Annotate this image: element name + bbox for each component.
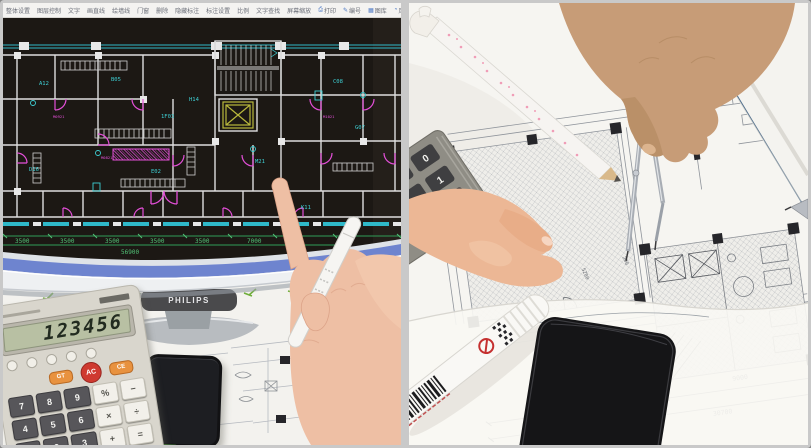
svg-text:3500: 3500	[15, 238, 30, 245]
svg-text:M1021: M1021	[323, 114, 335, 119]
svg-text:A12: A12	[39, 81, 49, 87]
menu-item[interactable]: 删除	[156, 6, 168, 15]
ce-key: CE	[108, 359, 134, 376]
digit-key: 2	[43, 435, 71, 445]
menu-item[interactable]: 屏幕缩放	[287, 6, 311, 15]
left-photo-cad-monitor: 整体设置 图层控制 文字 画直线 绘墙线 门窗 删除 隐藏标注 标注设置 比例 …	[3, 3, 401, 445]
svg-text:B05: B05	[111, 77, 121, 83]
menu-item-label: 打印	[324, 6, 336, 15]
svg-text:3500: 3500	[105, 238, 120, 245]
menu-item-label: 编号	[349, 6, 361, 15]
digit-key: 9	[63, 386, 91, 410]
digit-key: 4	[11, 417, 39, 441]
gt-key: GT	[48, 368, 74, 385]
svg-text:K11: K11	[301, 205, 311, 211]
svg-text:M0921: M0921	[53, 114, 65, 119]
round-key	[45, 353, 58, 366]
svg-text:3500: 3500	[60, 238, 75, 245]
svg-text:G07: G07	[355, 125, 365, 131]
library-icon: ▦	[368, 7, 374, 14]
monitor-brand-logo: PHILIPS	[168, 296, 210, 305]
menu-item-print[interactable]: ⎙ 打印	[318, 6, 336, 15]
total-dimension-label: 56900	[121, 249, 139, 256]
round-key	[65, 350, 78, 363]
hatched-room	[113, 149, 169, 160]
svg-text:C08: C08	[333, 79, 343, 85]
ac-key: AC	[79, 360, 103, 384]
menu-item[interactable]: 图层控制	[37, 6, 61, 15]
menu-item[interactable]: 画直线	[87, 6, 105, 15]
svg-text:3500: 3500	[195, 238, 210, 245]
edit-icon: ✎	[343, 7, 348, 14]
svg-text:3500: 3500	[150, 238, 165, 245]
cad-menu-bar: 整体设置 图层控制 文字 画直线 绘墙线 门窗 删除 隐藏标注 标注设置 比例 …	[3, 3, 401, 18]
round-key	[85, 347, 98, 360]
menu-item-number[interactable]: ✎ 编号	[343, 6, 361, 15]
menu-item-label: 风格	[398, 6, 401, 15]
svg-text:D16: D16	[29, 167, 39, 173]
plus-key: +	[98, 427, 126, 445]
svg-text:7000: 7000	[247, 238, 262, 245]
digit-key: 5	[39, 413, 67, 437]
menu-item-library[interactable]: ▦ 图库	[368, 6, 387, 15]
calculator-brand-mark	[3, 309, 41, 319]
svg-text:E02: E02	[151, 169, 161, 175]
menu-item-style[interactable]: ◔ 风格	[394, 6, 401, 15]
divide-key: ÷	[123, 400, 151, 424]
style-icon: ◔	[394, 7, 398, 13]
right-photo-scene: 2400 9000 30700 5200 200 2153	[409, 3, 808, 445]
minus-key: −	[119, 377, 147, 401]
menu-item[interactable]: 文字	[68, 6, 80, 15]
right-photo-blueprints: 2400 9000 30700 5200 200 2153	[409, 3, 808, 445]
svg-text:M21: M21	[255, 159, 265, 165]
percent-key: %	[91, 381, 119, 405]
equals-key: =	[126, 422, 154, 445]
svg-text:M0821: M0821	[101, 155, 113, 160]
digit-key: 6	[67, 408, 95, 432]
calculator-keypad: 7 8 9 % − 4 5 6 × ÷ 1 2 3 + = 00 .	[8, 377, 158, 445]
digit-key: 7	[8, 394, 36, 418]
menu-item[interactable]: 标注设置	[206, 6, 230, 15]
menu-item[interactable]: 比例	[237, 6, 249, 15]
photo-divider	[401, 0, 409, 448]
photo-collage: 整体设置 图层控制 文字 画直线 绘墙线 门窗 删除 隐藏标注 标注设置 比例 …	[0, 0, 811, 448]
menu-item-label: 图库	[375, 6, 387, 15]
digit-key: 1	[15, 440, 43, 445]
menu-item[interactable]: 文字查找	[256, 6, 280, 15]
menu-item[interactable]: 整体设置	[6, 6, 30, 15]
svg-text:1F03: 1F03	[161, 114, 174, 120]
svg-text:H14: H14	[189, 97, 200, 103]
digit-key: 8	[36, 390, 64, 414]
round-key	[6, 359, 19, 372]
print-icon: ⎙	[318, 7, 323, 14]
calculator-solar-panel	[99, 293, 130, 304]
round-key	[26, 356, 39, 369]
digit-key: 3	[71, 431, 99, 445]
menu-item[interactable]: 绘墙线	[112, 6, 130, 15]
menu-item[interactable]: 门窗	[137, 6, 149, 15]
menu-item[interactable]: 隐藏标注	[175, 6, 199, 15]
multiply-key: ×	[95, 404, 123, 428]
smartphone	[514, 314, 678, 445]
